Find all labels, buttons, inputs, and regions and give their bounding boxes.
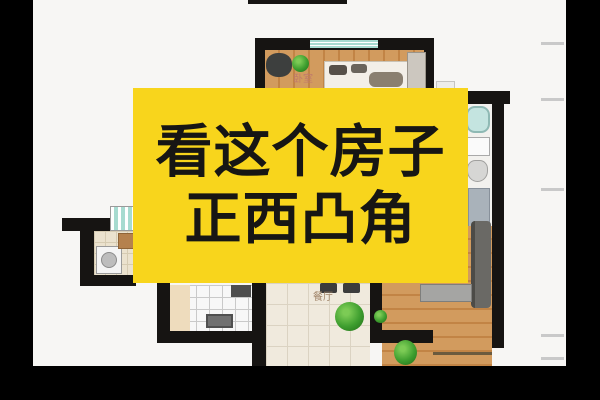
- kitchen-wall-left: [80, 231, 94, 277]
- pillow: [351, 64, 367, 73]
- video-frame: 卧室 餐厅: [0, 0, 600, 400]
- floor-plant: [394, 340, 417, 365]
- letterbox-left: [0, 0, 33, 400]
- bath-mat: [206, 314, 233, 328]
- bedroom-label: 卧室: [293, 75, 313, 85]
- blanket: [369, 72, 403, 87]
- dining-chair: [343, 283, 360, 293]
- dimension-tick: [541, 334, 564, 337]
- bedroom-wall-left: [255, 38, 265, 95]
- letterbox-bottom: [0, 366, 600, 400]
- outer-wall-right: [492, 91, 504, 348]
- washing-machine: [96, 246, 122, 274]
- dining-wall-left: [252, 283, 266, 366]
- letterbox-right: [566, 0, 600, 400]
- corner-plant-small: [374, 310, 387, 323]
- dimension-tick: [541, 42, 564, 45]
- tv-stand: [420, 284, 472, 302]
- sofa: [471, 221, 491, 308]
- kitchen-window: [110, 206, 134, 231]
- kitchen-wall-bottom: [80, 275, 136, 286]
- dimension-tick: [541, 357, 564, 360]
- bathtub: [466, 106, 490, 133]
- bay-window-line: [433, 352, 492, 355]
- washing-machine-door: [101, 252, 117, 268]
- dining-label: 餐厅: [313, 293, 333, 303]
- top-wall-fragment: [248, 0, 347, 4]
- shower-room-counter: [170, 285, 190, 331]
- dining-plant: [335, 302, 364, 331]
- toilet: [467, 160, 488, 182]
- bedroom-plant: [292, 55, 309, 72]
- dimension-tick: [541, 188, 564, 191]
- sink-counter: [466, 137, 490, 156]
- dimension-tick: [541, 98, 564, 101]
- shower-room-wall-bottom: [157, 331, 266, 343]
- caption-line-1: 看这个房子: [156, 121, 446, 184]
- wardrobe: [407, 52, 426, 93]
- caption-line-2: 正西凸角: [185, 188, 417, 251]
- desk-chair: [266, 53, 292, 77]
- bedroom-window: [310, 40, 378, 48]
- pillow: [329, 65, 347, 75]
- dark-fixture: [231, 285, 251, 297]
- caption-card: 看这个房子 正西凸角: [133, 88, 468, 283]
